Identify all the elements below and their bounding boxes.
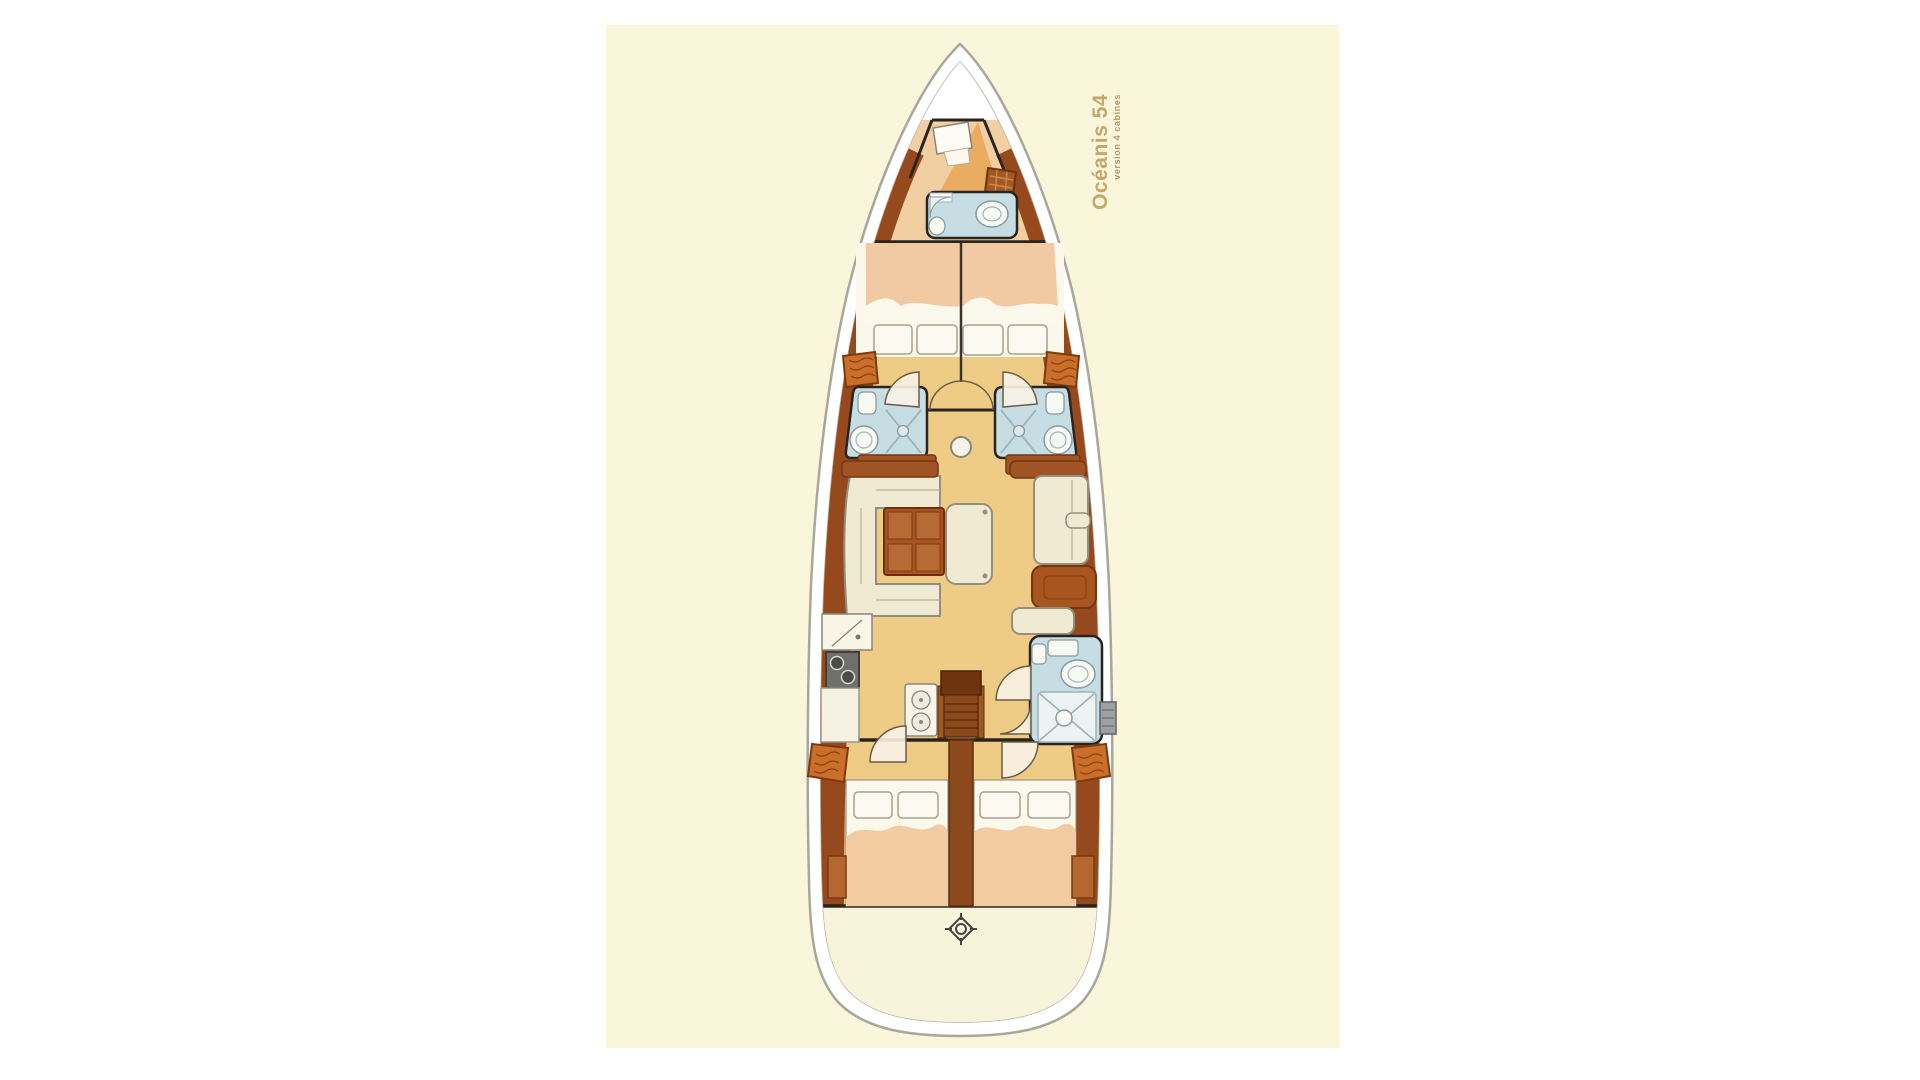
companionway-stairs bbox=[938, 671, 984, 738]
starboard-aft-bed bbox=[974, 780, 1076, 906]
galley-stove bbox=[826, 652, 859, 688]
starboard-mid-locker bbox=[1044, 352, 1079, 387]
model-title: Océanis 54 bbox=[1090, 94, 1111, 214]
chart-table bbox=[1032, 566, 1096, 608]
galley-fridge bbox=[822, 614, 872, 650]
starboard-head-toilet bbox=[1044, 426, 1072, 454]
center-bench bbox=[946, 504, 992, 584]
port-aft-locker bbox=[808, 744, 848, 782]
floorplan-page: Océanis 54 version 4 cabines bbox=[0, 0, 1920, 1080]
starboard-settee bbox=[1034, 476, 1090, 564]
forward-head-sink bbox=[929, 217, 945, 235]
starboard-hull-locker bbox=[1072, 856, 1094, 898]
settee-armrest bbox=[1066, 513, 1090, 528]
aft-cabin-divider bbox=[949, 740, 973, 906]
mast-post bbox=[951, 437, 971, 457]
boat-floorplan bbox=[0, 0, 1920, 1080]
brand-text: Océanis 54 version 4 cabines bbox=[1090, 94, 1126, 214]
port-sideboard bbox=[842, 461, 938, 477]
starboard-aft-locker bbox=[1072, 744, 1110, 782]
aft-head-sink bbox=[1032, 644, 1046, 664]
model-subtitle: version 4 cabines bbox=[1113, 94, 1122, 214]
port-aft-bed bbox=[846, 780, 948, 906]
port-mid-locker bbox=[843, 352, 878, 387]
chart-seat bbox=[1012, 608, 1074, 634]
starboard-head-sink bbox=[1046, 392, 1064, 414]
forward-head-toilet bbox=[976, 201, 1008, 227]
port-head-sink bbox=[858, 392, 876, 414]
aft-head-cistern bbox=[1048, 640, 1078, 656]
forward-head bbox=[927, 192, 1017, 238]
galley-sink bbox=[905, 684, 937, 736]
saloon-table bbox=[884, 508, 944, 575]
galley-counter bbox=[821, 688, 859, 742]
port-head-toilet bbox=[850, 426, 878, 454]
aft-head-shower bbox=[1038, 692, 1096, 742]
cockpit-locker bbox=[1100, 702, 1116, 734]
aft-head-toilet bbox=[1061, 660, 1095, 688]
port-hull-locker bbox=[828, 856, 846, 898]
